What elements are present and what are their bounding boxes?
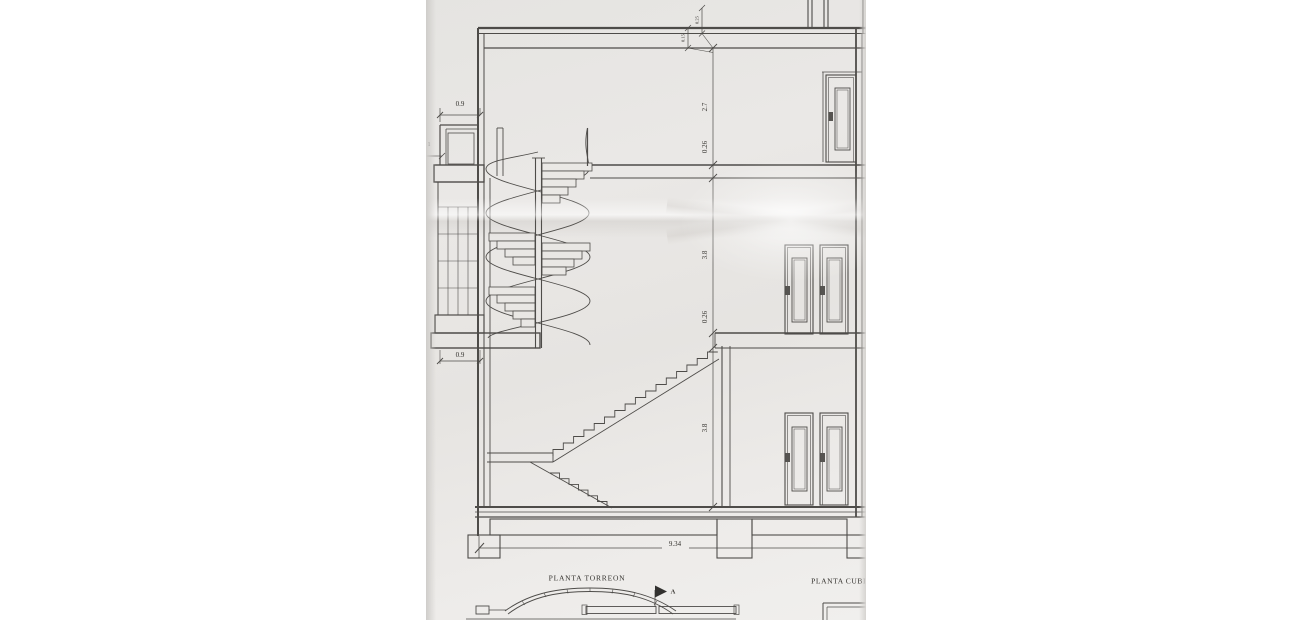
dim-lower-slab-label: 0.26 — [701, 311, 709, 323]
door-mid-left — [785, 245, 813, 334]
interior-wall — [722, 346, 730, 507]
plan-torreon-title: PLANTA TORREON — [549, 574, 626, 583]
dim-lower-height-label: 3.8 — [701, 424, 709, 433]
dim-middle-height-label: 3.8 — [701, 251, 709, 260]
dim-upper-height-label: 2.7 — [701, 103, 709, 112]
right-wall — [856, 28, 862, 517]
dim-parapet-a-label: 0.25 — [695, 16, 700, 24]
plan-cubierta-title: PLANTA CUBIER — [811, 577, 866, 586]
ground-slab — [475, 507, 866, 517]
section-drawing — [426, 0, 866, 620]
straight-staircase — [487, 352, 719, 508]
door-upper — [822, 72, 862, 162]
floor-slab-lower — [715, 333, 866, 348]
scanned-blueprint: 0.9 1 0.25 0.15 2.7 0.26 3.8 0.26 3.8 0.… — [426, 0, 866, 620]
page: 0.9 1 0.25 0.15 2.7 0.26 3.8 0.26 3.8 0.… — [0, 0, 1290, 620]
left-wall — [478, 28, 490, 536]
dim-upper-slab-label: 0.26 — [701, 141, 709, 153]
dim-overall-width-label: 9.34 — [669, 540, 681, 548]
plan-cubierta — [823, 603, 866, 620]
height-dimension-chain — [709, 44, 717, 511]
roof-slab — [478, 28, 866, 48]
door-mid-right — [820, 245, 848, 334]
spiral-staircase — [486, 128, 592, 348]
dim-parapet-b-label: 0.15 — [681, 34, 686, 42]
door-lower-left — [785, 413, 813, 505]
plan-torreon — [466, 588, 739, 619]
door-lower-right — [820, 413, 848, 505]
dim-balcony-top-label: 0.9 — [456, 100, 465, 108]
section-marker-a-label: A — [671, 589, 676, 596]
dim-balcony-edge-label: 1 — [428, 142, 431, 148]
balcony-railing — [438, 182, 478, 315]
balcony-door-jamb — [497, 128, 503, 176]
dim-balcony-bottom-label: 0.9 — [456, 351, 465, 359]
foundation-footings — [468, 519, 866, 558]
floor-slab-upper — [590, 165, 866, 178]
